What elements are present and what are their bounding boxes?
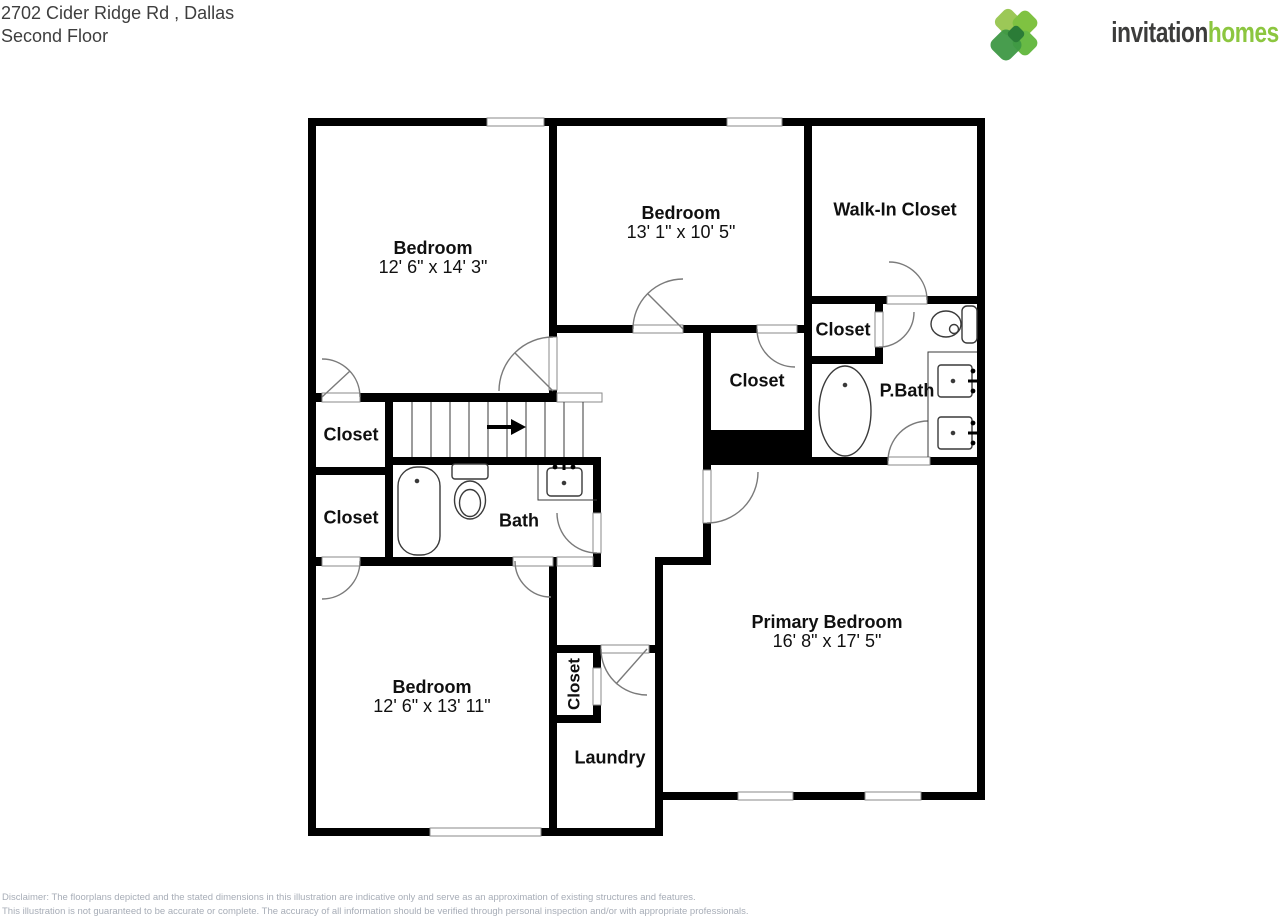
faucet-spout	[563, 461, 566, 470]
toilet-tank	[452, 464, 488, 479]
tub-faucet-dot	[415, 479, 418, 482]
door-leaf	[648, 294, 683, 329]
room-name: Bedroom	[379, 239, 488, 258]
door-opening	[888, 457, 930, 465]
room-label-bath: Bath	[499, 512, 539, 531]
disclaimer-line-1: Disclaimer: The floorplans depicted and …	[2, 892, 696, 903]
window	[430, 828, 541, 836]
door-arc	[757, 329, 795, 367]
room-name: Closet	[323, 426, 378, 445]
room-label-pbath: P.Bath	[880, 382, 935, 401]
passage-opening	[557, 557, 593, 566]
floorplan-drawing	[0, 0, 1280, 917]
room-label-closet-by-pbath: Closet	[815, 321, 870, 340]
tub-faucet-dot	[843, 383, 846, 386]
door-arc	[879, 312, 914, 347]
sink-drain-dot	[951, 379, 954, 382]
room-name: Closet	[815, 321, 870, 340]
faucet-handle	[971, 369, 976, 374]
faucet-handle	[971, 389, 976, 394]
oval-bathtub	[819, 366, 871, 456]
room-label-laundry: Laundry	[574, 749, 645, 768]
room-name: Laundry	[574, 749, 645, 768]
room-label-primary-bedroom: Primary Bedroom 16' 8" x 17' 5"	[751, 613, 902, 651]
door-opening	[549, 337, 557, 390]
room-label-bedroom-top-left: Bedroom 12' 6" x 14' 3"	[379, 239, 488, 277]
door-opening	[703, 470, 711, 523]
room-label-closet-left-upper: Closet	[323, 426, 378, 445]
toilet-tank	[962, 306, 977, 343]
faucet-handle	[971, 421, 976, 426]
stairs	[412, 402, 583, 457]
room-name: P.Bath	[880, 382, 935, 401]
door-opening	[757, 325, 797, 333]
room-name: Bath	[499, 512, 539, 531]
door-opening	[513, 557, 553, 566]
window	[487, 118, 544, 126]
door-opening	[875, 312, 883, 347]
floorplan-page: 2702 Cider Ridge Rd , Dallas Second Floo…	[0, 0, 1280, 917]
sink-drain-dot	[951, 431, 954, 434]
stair-railing	[557, 393, 602, 402]
room-label-bedroom-bottom-left: Bedroom 12' 6" x 13' 11"	[373, 678, 490, 716]
room-name: Closet	[565, 658, 584, 710]
room-name: Bedroom	[373, 678, 490, 697]
window	[865, 792, 921, 800]
room-dims: 13' 1" x 10' 5"	[627, 223, 736, 242]
door-opening	[593, 668, 601, 705]
faucet-handle	[571, 465, 576, 470]
faucet-handle	[553, 465, 558, 470]
room-label-closet-laundry: Closet	[565, 658, 584, 710]
room-dims: 12' 6" x 14' 3"	[379, 258, 488, 277]
toilet-flush	[950, 325, 959, 334]
room-dims: 12' 6" x 13' 11"	[373, 697, 490, 716]
door-opening	[322, 557, 360, 566]
door-opening	[593, 513, 601, 553]
door-leaf	[515, 353, 553, 391]
door-arc	[707, 472, 758, 523]
room-label-bedroom-top-middle: Bedroom 13' 1" x 10' 5"	[627, 204, 736, 242]
faucet-handle	[971, 441, 976, 446]
stairs-arrow-head	[511, 419, 526, 435]
door-opening	[887, 296, 927, 304]
sink-drain-dot	[562, 481, 565, 484]
door-leaf	[616, 649, 647, 684]
door-opening	[322, 393, 360, 402]
faucet-spout	[968, 380, 977, 383]
room-name: Bedroom	[627, 204, 736, 223]
door-opening	[601, 645, 649, 653]
door-opening	[633, 325, 683, 333]
faucet-spout	[968, 432, 977, 435]
room-name: Primary Bedroom	[751, 613, 902, 632]
door-arc	[322, 561, 360, 599]
window	[727, 118, 782, 126]
room-dims: 16' 8" x 17' 5"	[751, 632, 902, 651]
door-arc	[888, 421, 928, 461]
toilet-bowl-inner	[460, 490, 481, 517]
room-label-walk-in-closet: Walk-In Closet	[833, 201, 956, 220]
bath-fixtures	[398, 461, 597, 555]
room-name: Closet	[729, 372, 784, 391]
disclaimer-line-2: This illustration is not guaranteed to b…	[2, 906, 749, 917]
room-name: Closet	[323, 509, 378, 528]
door-arc	[889, 262, 927, 300]
room-label-closet-hall: Closet	[729, 372, 784, 391]
door-arc	[557, 513, 597, 553]
room-name: Walk-In Closet	[833, 201, 956, 220]
window	[738, 792, 793, 800]
room-label-closet-left-lower: Closet	[323, 509, 378, 528]
